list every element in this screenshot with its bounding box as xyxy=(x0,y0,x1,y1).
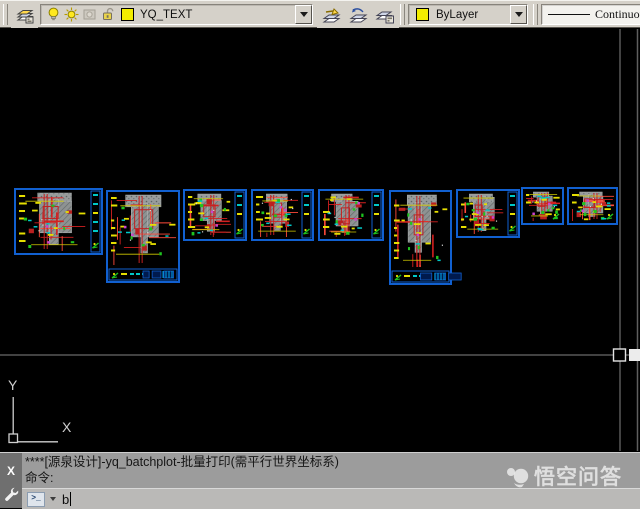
cad-drawings-layer xyxy=(15,188,617,284)
layer-previous-button[interactable] xyxy=(344,4,372,28)
toolbar-separator xyxy=(400,4,405,25)
wukong-logo-icon xyxy=(504,463,530,489)
drawing-frame-3 xyxy=(184,190,246,240)
layer-previous-icon xyxy=(348,7,368,25)
layers-properties-toolbar: YQ_TEXT ByLayer xyxy=(0,0,640,28)
color-combo-arrow-button[interactable] xyxy=(510,5,527,24)
watermark: 悟空问答 xyxy=(504,461,622,491)
drawing-frame-7 xyxy=(457,190,519,237)
chevron-down-icon xyxy=(515,12,523,17)
toolbar-separator xyxy=(533,4,538,25)
command-window-sidebar: X xyxy=(0,453,22,508)
unlock-icon[interactable] xyxy=(101,7,116,22)
drawing-frame-2 xyxy=(107,191,179,282)
layer-combo-arrow-button[interactable] xyxy=(295,5,312,24)
viewport-freeze-icon[interactable] xyxy=(83,8,97,22)
command-input-row[interactable]: >_ b xyxy=(22,488,640,509)
linetype-preview-line xyxy=(548,14,590,15)
drawing-frame-9 xyxy=(568,188,617,224)
linetype-combo-value: Continuous xyxy=(595,7,640,22)
sun-icon[interactable] xyxy=(64,7,79,22)
layer-states-button[interactable] xyxy=(371,4,399,28)
make-object-layer-current-icon xyxy=(321,7,341,25)
edge-grip-handle xyxy=(629,349,640,361)
drawing-frame-5 xyxy=(319,190,383,240)
layer-control-dropdown[interactable]: YQ_TEXT xyxy=(40,4,313,25)
ucs-icon: Y X xyxy=(8,377,72,443)
make-object-layer-current-button[interactable] xyxy=(317,4,345,28)
drawing-frame-1 xyxy=(15,189,102,254)
text-cursor xyxy=(70,492,71,506)
linetype-control-dropdown[interactable]: Continuous xyxy=(541,4,640,25)
current-color-swatch xyxy=(416,8,429,21)
command-close-button[interactable]: X xyxy=(0,464,22,478)
crosshair-cursor xyxy=(0,29,640,451)
bulb-on-icon[interactable] xyxy=(47,7,60,22)
chevron-down-icon xyxy=(300,12,308,17)
color-combo-value: ByLayer xyxy=(436,9,478,21)
drawing-frame-6 xyxy=(390,191,461,284)
ucs-x-label: X xyxy=(62,419,72,435)
drawing-frame-4 xyxy=(252,190,313,240)
layer-properties-manager-icon xyxy=(15,7,35,25)
drawing-canvas[interactable]: Y X xyxy=(0,28,640,452)
drawing-frame-8 xyxy=(522,188,563,224)
layer-states-icon xyxy=(375,7,395,25)
layer-combo-value: YQ_TEXT xyxy=(140,9,192,21)
command-input-value[interactable]: b xyxy=(62,492,69,507)
ucs-y-label: Y xyxy=(8,377,18,393)
toolbar-grip-handle[interactable] xyxy=(3,4,8,25)
watermark-text: 悟空问答 xyxy=(534,461,622,491)
layer-color-swatch[interactable] xyxy=(121,8,134,21)
color-control-dropdown[interactable]: ByLayer xyxy=(408,4,528,25)
layer-properties-manager-button[interactable] xyxy=(11,4,38,28)
command-prompt-icon: >_ xyxy=(27,492,45,507)
command-customize-button[interactable] xyxy=(3,486,19,507)
wrench-icon xyxy=(3,486,19,502)
pickbox xyxy=(614,349,626,361)
autocad-window: { "toolbar": { "layer_manager_button": {… xyxy=(0,0,640,508)
recent-commands-arrow-icon[interactable] xyxy=(50,497,56,501)
